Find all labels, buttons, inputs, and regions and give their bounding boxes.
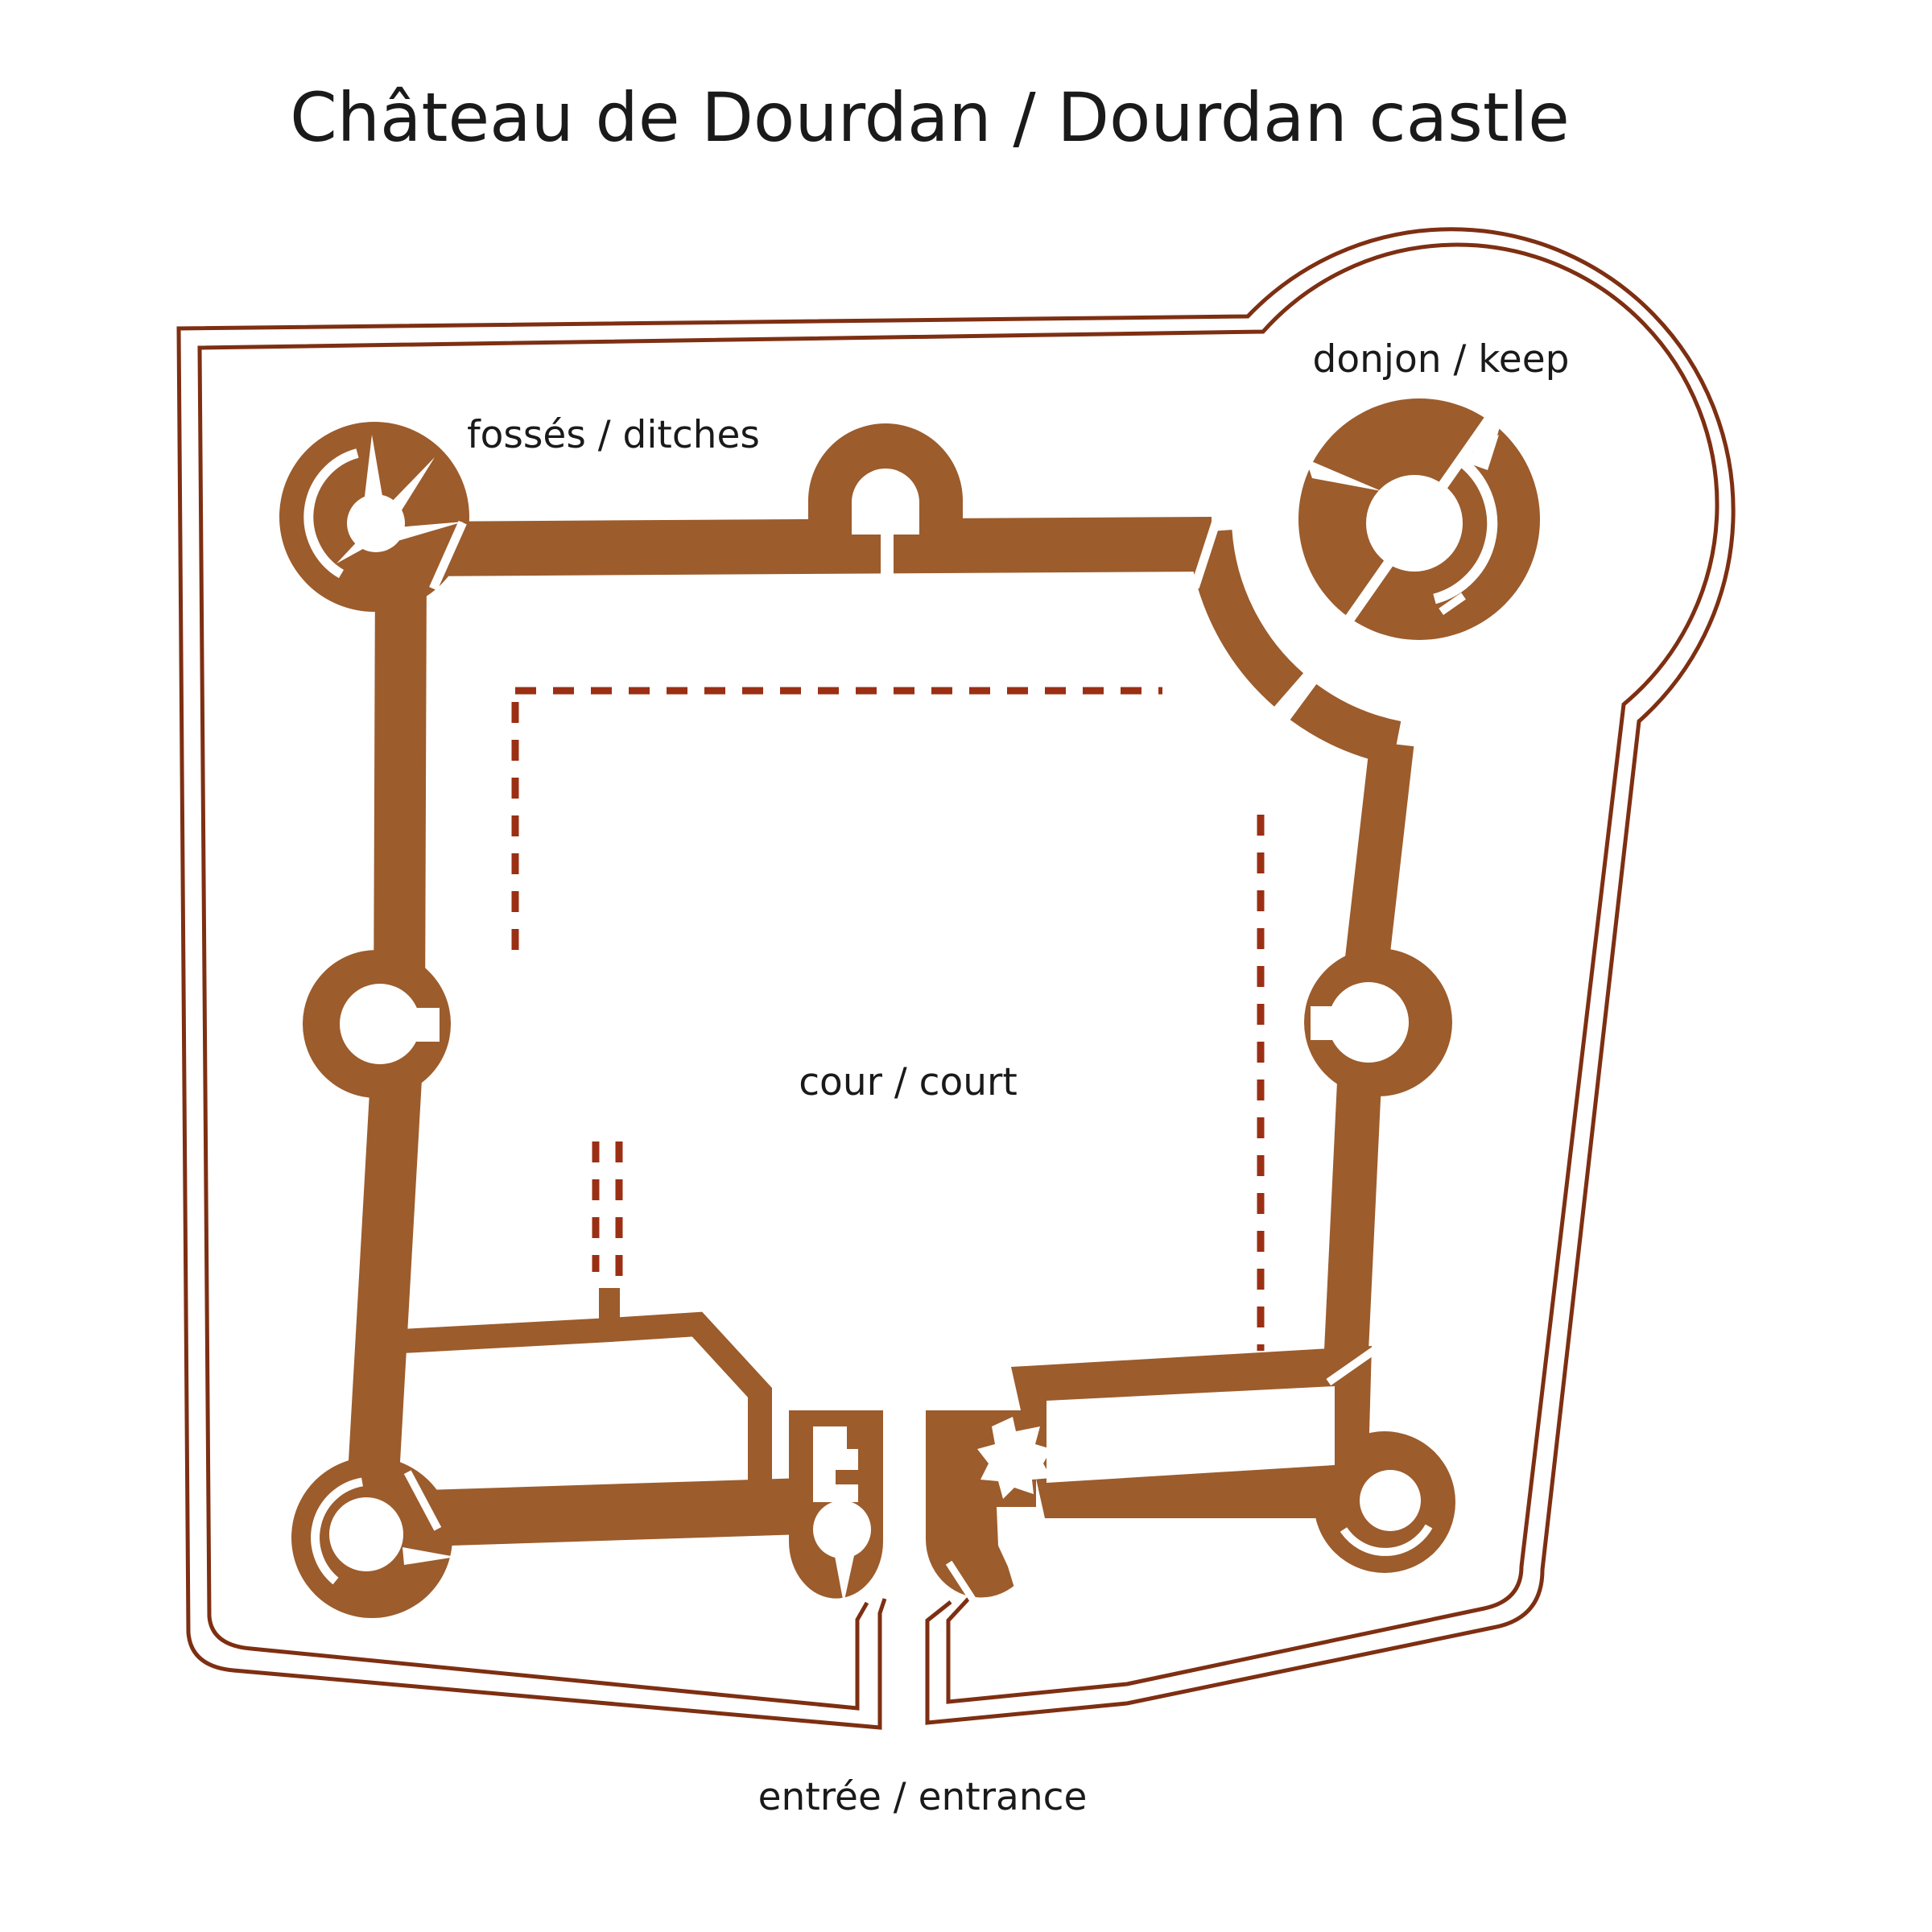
label-entrance: entrée / entrance <box>758 1775 1088 1819</box>
east-d-tower-mouth <box>1311 1006 1372 1040</box>
northeast-curved-wall <box>1210 531 1289 690</box>
castle-plan-figure: Château de Dourdan / Dourdan castle foss… <box>0 0 1932 1932</box>
west-gate-slit <box>882 1564 924 1620</box>
northeast-curved-wall-2 <box>1303 702 1397 743</box>
north-wall <box>402 517 1212 576</box>
south-wall <box>401 1478 803 1547</box>
label-ditches: fossés / ditches <box>467 413 760 457</box>
castle-plan-page: Château de Dourdan / Dourdan castle foss… <box>0 0 1932 1932</box>
west-d-tower-mouth <box>378 1008 440 1042</box>
inner-wall-stub <box>599 1288 620 1333</box>
dashed-lines <box>515 691 1261 1351</box>
label-keep: donjon / keep <box>1313 337 1570 382</box>
sw-tower-core-cutout <box>329 1497 403 1571</box>
se-tower-core-cutout <box>1360 1470 1421 1531</box>
inner-court-wall <box>402 1324 760 1491</box>
west-gate-round-cutout <box>813 1501 871 1558</box>
label-court: cour / court <box>799 1060 1018 1104</box>
page-title: Château de Dourdan / Dourdan castle <box>290 78 1570 157</box>
north-arch-slit <box>881 523 894 586</box>
